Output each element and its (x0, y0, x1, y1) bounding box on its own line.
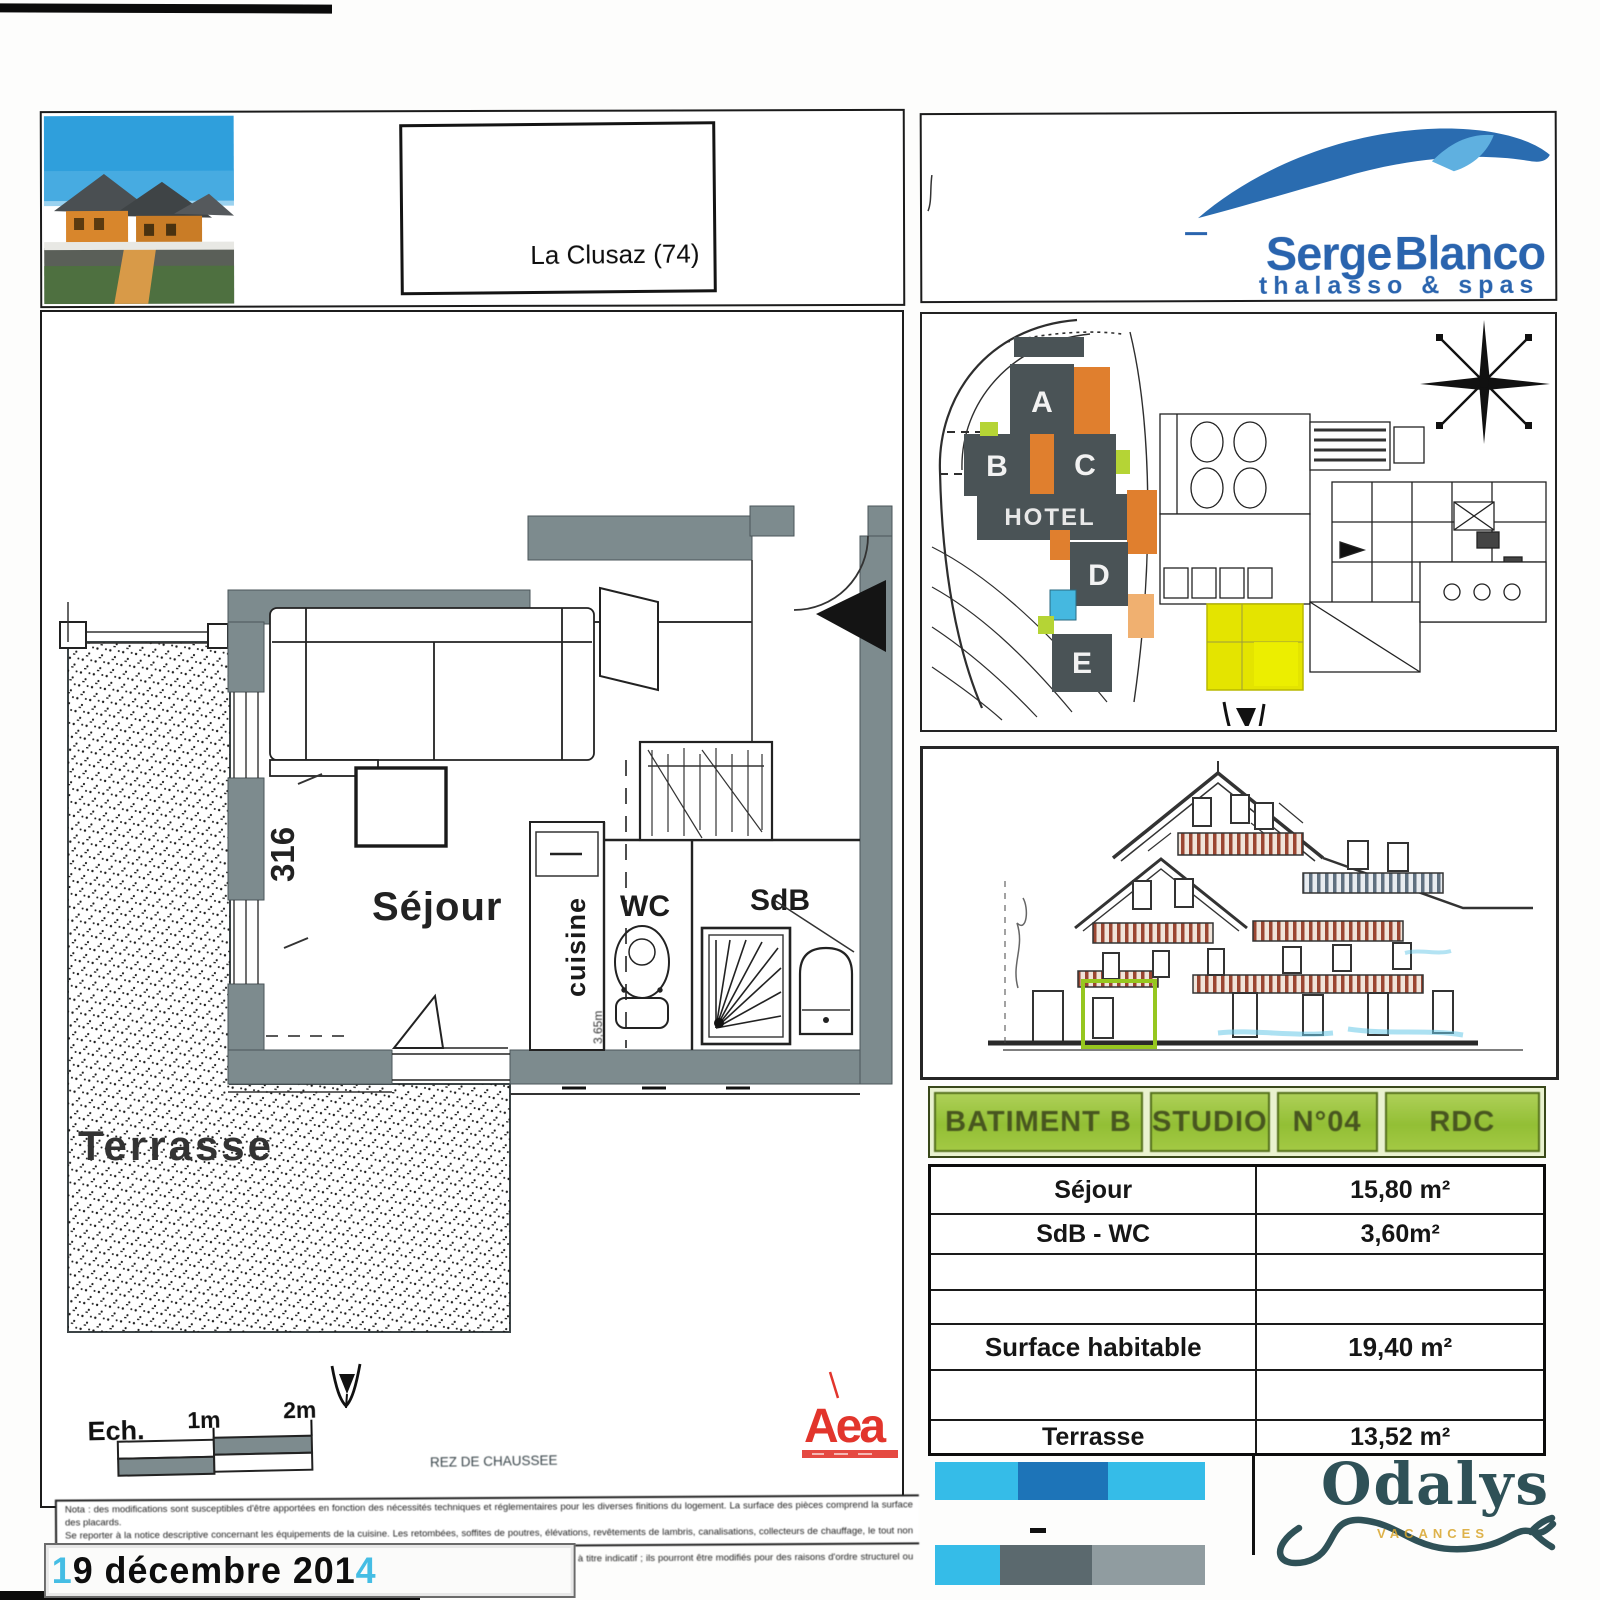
unit-header-bar: BATIMENT B STUDIO N°04 RDC (928, 1086, 1546, 1158)
building-d-label: D (1088, 559, 1110, 592)
row-label: Séjour (931, 1167, 1255, 1213)
color-bar-top (935, 1462, 1205, 1500)
siteplan-drawing: A B C D E HOTEL (922, 314, 1551, 726)
siteplan-box: A B C D E HOTEL (920, 312, 1557, 732)
hotel-label: HOTEL (1004, 504, 1095, 531)
toilet (615, 926, 669, 1028)
floorplan-drawing: Terrasse (42, 312, 902, 1506)
odalys-swirl-icon (1265, 1448, 1557, 1600)
sdb-label: SdB (750, 884, 810, 917)
row-label (931, 1255, 1255, 1289)
site-buildings: A B C D E HOTEL (964, 337, 1157, 692)
unit-type-cell: STUDIO (1150, 1092, 1270, 1152)
unit-building-cell: BATIMENT B (934, 1092, 1143, 1152)
row-value: 3,60m² (1255, 1215, 1543, 1253)
date-lead: 1 (52, 1550, 73, 1592)
stamp-logo-text: Aea (804, 1400, 886, 1453)
terrasse-label: Terrasse (78, 1122, 274, 1169)
unit-floor-cell: RDC (1385, 1092, 1540, 1152)
row-value (1255, 1291, 1543, 1323)
entrance-arrow-icon (816, 580, 886, 652)
area-table: Séjour 15,80 m² SdB - WC 3,60m² Surface … (928, 1164, 1546, 1456)
row-value (1255, 1255, 1543, 1289)
building-e-label: E (1072, 647, 1092, 680)
row-label: Surface habitable (931, 1325, 1255, 1369)
date-stamp: 19 décembre 2014 (44, 1543, 576, 1598)
brand-tagline: thalasso & spas (1259, 271, 1539, 301)
building-a-label: A (1031, 386, 1053, 419)
location-label: La Clusaz (74) (530, 238, 699, 271)
row-value (1255, 1371, 1543, 1419)
unit-number-cell: N°04 (1277, 1092, 1378, 1152)
elevation-drawing (923, 749, 1550, 1071)
building-b-label: B (986, 450, 1008, 483)
closet (640, 742, 772, 840)
building-c-label: C (1074, 449, 1096, 482)
row-value: 15,80 m² (1255, 1167, 1543, 1213)
row-label: Terrasse (931, 1421, 1255, 1453)
header-strip: La Clusaz (74) (40, 109, 906, 308)
scale-bar: Ech. 1m 2m (87, 1397, 318, 1477)
disclaimer: Nota : des modifications sont susceptibl… (55, 1494, 919, 1549)
table-row: Surface habitable 19,40 m² (931, 1325, 1543, 1371)
stamp-logo: Aea (802, 1372, 898, 1458)
elevation-box (920, 746, 1559, 1080)
tick-mark (1030, 1528, 1046, 1533)
scanned-floorplan-sheet: La Clusaz (74) Ter (0, 0, 1600, 1600)
row-label (931, 1291, 1255, 1323)
highlighted-unit (1207, 604, 1303, 690)
divider-line (1252, 1455, 1255, 1555)
dim-height-label: 316 (264, 827, 301, 882)
table (356, 768, 446, 846)
table-row: Séjour 15,80 m² (931, 1167, 1543, 1215)
table-row (931, 1255, 1543, 1291)
kitchen: cuisine 3,65m (530, 822, 605, 1050)
row-label: SdB - WC (931, 1215, 1255, 1253)
scale-2m: 2m (283, 1397, 317, 1424)
resort-photo (44, 116, 234, 304)
pool (1050, 590, 1076, 620)
sejour-label: Séjour (372, 885, 502, 929)
date-tail: 4 (356, 1550, 377, 1592)
scale-1m: 1m (187, 1407, 221, 1434)
table-row: SdB - WC 3,60m² (931, 1215, 1543, 1255)
odalys-logo: Odalys VACANCES (1265, 1448, 1557, 1600)
washbasin (800, 948, 852, 1034)
title-box: La Clusaz (74) (399, 121, 717, 295)
wc-label: WC (620, 890, 670, 923)
date-main: 9 décembre 201 (73, 1550, 356, 1592)
elevation-windows (1033, 795, 1453, 1043)
brand-logo-box: SergeBlanco thalasso & spas (920, 111, 1558, 303)
plan-caption: REZ DE CHAUSSEE (430, 1453, 558, 1470)
north-arrow-icon (332, 1364, 360, 1408)
sofa (270, 608, 594, 776)
table-row (931, 1371, 1543, 1421)
french-window (392, 996, 510, 1080)
color-bar-bottom (935, 1545, 1205, 1585)
row-value: 19,40 m² (1255, 1325, 1543, 1369)
shower (702, 928, 790, 1044)
scan-edge-top (0, 3, 332, 13)
terrace-post (208, 624, 228, 648)
tree-sketch (1016, 898, 1026, 988)
compass-icon (1420, 320, 1550, 444)
table-row (931, 1291, 1543, 1325)
down-marker-icon (1224, 702, 1264, 726)
odalys-subtext: VACANCES (1377, 1526, 1489, 1541)
floorplan-panel: Terrasse (40, 310, 904, 1508)
terrace-post (60, 622, 86, 648)
cuisine-label: cuisine (561, 897, 591, 997)
row-label (931, 1371, 1255, 1419)
